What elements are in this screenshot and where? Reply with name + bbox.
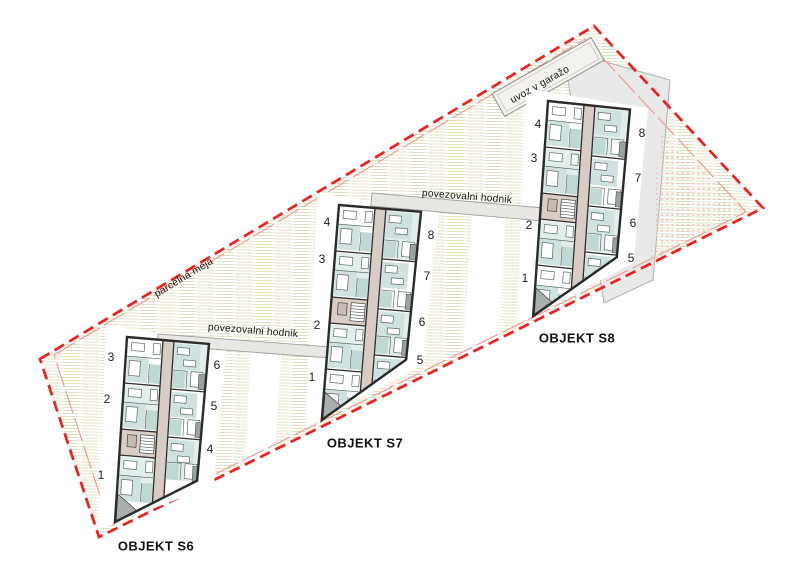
unit-number: 6 (214, 358, 221, 372)
unit-number: 3 (319, 252, 326, 266)
unit-number: 5 (211, 399, 218, 413)
unit-number: 2 (526, 218, 533, 232)
unit-number: 2 (314, 318, 321, 332)
unit-number: 7 (424, 269, 431, 283)
unit-number: 4 (535, 117, 542, 131)
unit-number: 3 (108, 350, 115, 364)
unit-number: 1 (98, 468, 105, 482)
unit-number: 8 (428, 228, 435, 242)
unit-number: 6 (630, 216, 637, 230)
building-label: OBJEKT S7 (327, 436, 403, 451)
unit-number: 7 (635, 171, 642, 185)
unit-number: 5 (628, 251, 635, 265)
unit-number: 5 (417, 353, 424, 367)
building-label: OBJEKT S6 (118, 539, 194, 554)
unit-number: 8 (639, 126, 646, 140)
unit-number: 6 (419, 315, 426, 329)
unit-number: 1 (309, 370, 316, 384)
unit-number: 4 (207, 442, 214, 456)
unit-number: 1 (522, 271, 529, 285)
site-plan: .w{stroke:#4e5a58;stroke-width:0.6;} .f{… (0, 0, 800, 561)
unit-number: 2 (104, 392, 111, 406)
unit-number: 3 (531, 151, 538, 165)
unit-number: 4 (324, 215, 331, 229)
building-label: OBJEKT S8 (539, 331, 615, 346)
